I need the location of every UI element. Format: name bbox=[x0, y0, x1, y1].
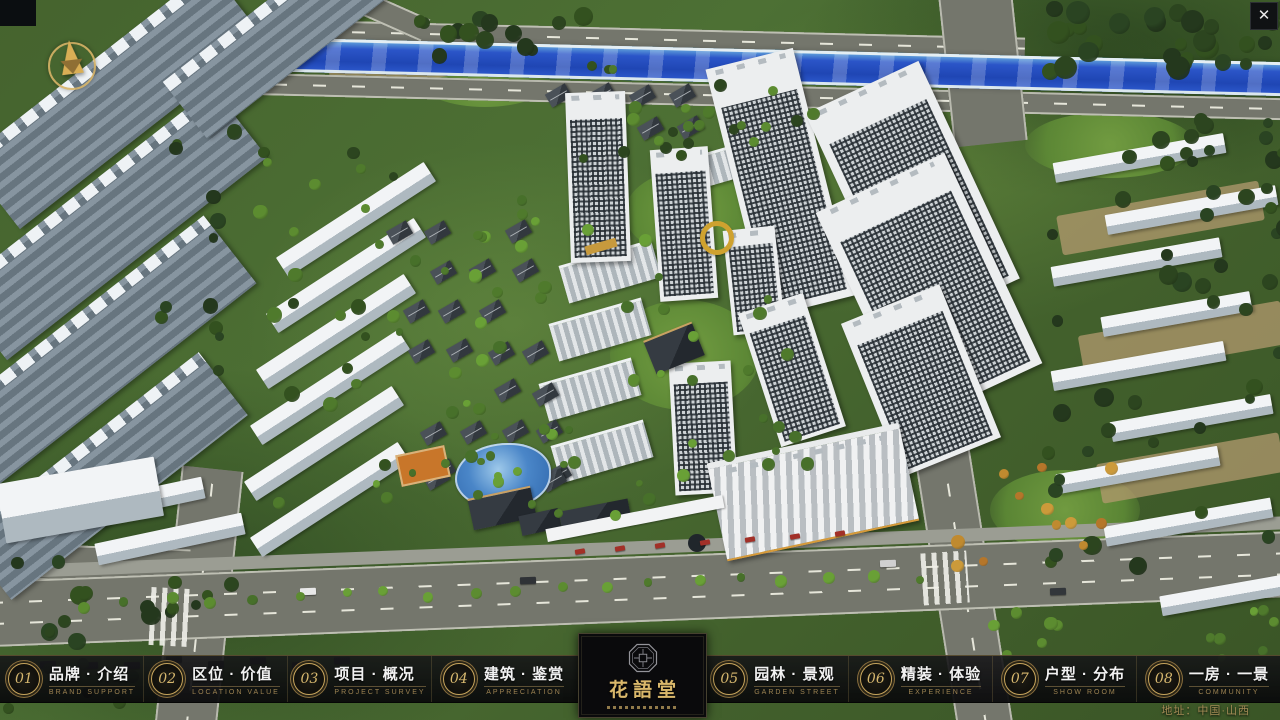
nav-subtitle: GARDEN STREET bbox=[754, 686, 840, 696]
tree bbox=[1094, 388, 1114, 408]
car bbox=[880, 560, 896, 568]
tree bbox=[351, 379, 362, 390]
tree bbox=[423, 592, 433, 602]
tree bbox=[764, 295, 772, 303]
nav-title: 一房 · 一景 bbox=[1189, 663, 1269, 684]
tree bbox=[1187, 156, 1198, 167]
tree bbox=[1263, 118, 1273, 128]
tree bbox=[677, 469, 690, 482]
tree bbox=[1109, 13, 1130, 34]
tree bbox=[1240, 58, 1252, 70]
tree bbox=[473, 231, 482, 240]
abs bbox=[0, 0, 36, 26]
tree bbox=[761, 122, 771, 132]
tree bbox=[288, 268, 303, 283]
tree bbox=[789, 431, 802, 444]
tree bbox=[723, 450, 735, 462]
tree bbox=[773, 421, 785, 433]
seal-emblem-icon bbox=[628, 643, 658, 673]
project-logo[interactable]: 花語堂 bbox=[578, 633, 707, 718]
tree bbox=[628, 374, 640, 386]
tree bbox=[1054, 56, 1077, 79]
nav-badge: 04 bbox=[443, 663, 475, 695]
car bbox=[520, 577, 536, 585]
tree bbox=[1052, 315, 1063, 326]
car bbox=[1050, 588, 1066, 596]
tree bbox=[688, 331, 699, 342]
tree bbox=[1122, 150, 1137, 165]
tree bbox=[410, 255, 421, 266]
tree bbox=[491, 433, 498, 440]
tree bbox=[1214, 259, 1228, 273]
villa bbox=[424, 220, 451, 244]
tree bbox=[473, 403, 485, 415]
tree bbox=[1078, 42, 1098, 62]
tree bbox=[119, 597, 129, 607]
tree bbox=[688, 439, 697, 448]
tree bbox=[554, 509, 563, 518]
tree bbox=[582, 224, 594, 236]
tree bbox=[1207, 295, 1221, 309]
tree bbox=[440, 25, 457, 42]
tree bbox=[657, 370, 665, 378]
villa bbox=[511, 258, 538, 282]
tree bbox=[381, 492, 392, 503]
walk bbox=[920, 550, 970, 605]
tree bbox=[753, 307, 767, 321]
tree bbox=[1066, 1, 1090, 25]
tree bbox=[565, 426, 573, 434]
tree bbox=[486, 451, 496, 461]
tree bbox=[676, 150, 687, 161]
tree bbox=[658, 304, 669, 315]
tree bbox=[1079, 541, 1088, 550]
tree bbox=[296, 592, 305, 601]
villa bbox=[408, 340, 435, 364]
tree bbox=[493, 476, 505, 488]
nav-subtitle: PROJECT SURVEY bbox=[334, 686, 425, 696]
tree bbox=[655, 273, 663, 281]
tree bbox=[258, 147, 269, 158]
nav-badge: 01 bbox=[8, 663, 40, 695]
tree bbox=[210, 213, 226, 229]
villa bbox=[493, 378, 520, 402]
nav-subtitle: BRAND SUPPORT bbox=[49, 686, 135, 696]
tree bbox=[1160, 156, 1175, 171]
tree bbox=[215, 332, 224, 341]
tree bbox=[481, 14, 498, 31]
tree bbox=[1200, 208, 1214, 222]
tree bbox=[1129, 557, 1147, 575]
tree bbox=[253, 205, 268, 220]
tree bbox=[999, 469, 1009, 479]
nav-subtitle: EXPERIENCE bbox=[901, 686, 981, 696]
tree bbox=[476, 354, 490, 368]
tree bbox=[267, 307, 283, 323]
tree bbox=[515, 240, 528, 253]
tree bbox=[694, 120, 705, 131]
tree bbox=[775, 575, 788, 588]
tree bbox=[528, 500, 536, 508]
tree bbox=[1015, 492, 1024, 501]
tree bbox=[168, 576, 182, 590]
tree bbox=[1181, 10, 1204, 33]
tree bbox=[1273, 347, 1280, 359]
tree bbox=[610, 510, 621, 521]
tree bbox=[1238, 189, 1254, 205]
tree bbox=[737, 573, 746, 582]
tree bbox=[1250, 607, 1258, 615]
nav-badge: 06 bbox=[860, 663, 892, 695]
tree bbox=[1042, 446, 1056, 460]
tree bbox=[1161, 249, 1173, 261]
nav-item-project-overview[interactable]: 03 项目 · 概况 PROJECT SURVEY bbox=[287, 656, 431, 702]
logo-tagline bbox=[607, 706, 679, 709]
tree bbox=[743, 365, 754, 376]
tree bbox=[1096, 518, 1107, 529]
tree bbox=[1082, 446, 1093, 457]
tree bbox=[636, 480, 643, 487]
tree bbox=[52, 555, 66, 569]
nav-item-one-room-one-view[interactable]: 08 一房 · 一景 COMMUNITY bbox=[1136, 656, 1280, 702]
tree bbox=[1054, 474, 1065, 485]
tree bbox=[1265, 202, 1277, 214]
tree bbox=[510, 586, 521, 597]
villa bbox=[438, 299, 465, 323]
tree bbox=[475, 317, 487, 329]
presentation-window: ✕ 01 品牌 · 介绍 BRAND SUPPORT 02 区位 · 价值 LO… bbox=[0, 0, 1280, 720]
tree bbox=[1144, 7, 1165, 28]
tree bbox=[517, 38, 535, 56]
tree bbox=[441, 459, 450, 468]
tree bbox=[224, 577, 239, 592]
address-label: 地址：中国·山西 bbox=[1161, 702, 1250, 718]
tree bbox=[379, 459, 391, 471]
tree bbox=[289, 227, 299, 237]
tree bbox=[1037, 463, 1047, 473]
gold-ring-feature bbox=[700, 221, 734, 255]
nav-badge: 05 bbox=[713, 663, 745, 695]
tree bbox=[988, 620, 999, 631]
tree bbox=[169, 142, 182, 155]
nav-item-landscape[interactable]: 05 园林 · 景观 GARDEN STREET bbox=[705, 656, 848, 702]
tree bbox=[1065, 517, 1077, 529]
tree bbox=[1258, 605, 1269, 616]
tree bbox=[668, 127, 678, 137]
tree bbox=[517, 195, 527, 205]
tree bbox=[477, 458, 484, 465]
villa bbox=[420, 421, 447, 445]
tree bbox=[1115, 191, 1131, 207]
nav-badge: 03 bbox=[293, 663, 325, 695]
tree bbox=[3, 703, 14, 714]
tree bbox=[737, 121, 746, 130]
tree bbox=[1128, 395, 1143, 410]
tree bbox=[409, 469, 416, 476]
tower bbox=[565, 91, 631, 263]
tree bbox=[1239, 303, 1252, 316]
tree bbox=[1195, 278, 1212, 295]
tree bbox=[323, 397, 338, 412]
tree bbox=[361, 204, 370, 213]
villa bbox=[446, 338, 473, 362]
tree bbox=[579, 154, 588, 163]
tree bbox=[1194, 422, 1206, 434]
nav-subtitle: LOCATION VALUE bbox=[192, 686, 280, 696]
tree bbox=[335, 310, 346, 321]
tree bbox=[916, 576, 924, 584]
nav-subtitle: APPRECIATION bbox=[484, 686, 564, 696]
tree bbox=[539, 424, 550, 435]
nav-subtitle: SHOW ROOM bbox=[1045, 686, 1125, 696]
tree bbox=[951, 560, 963, 572]
tree bbox=[1259, 131, 1273, 145]
tree bbox=[1262, 274, 1278, 290]
masterplan-render bbox=[0, 0, 1280, 720]
tree bbox=[683, 121, 694, 132]
close-icon[interactable]: ✕ bbox=[1250, 2, 1278, 30]
tree bbox=[979, 557, 988, 566]
tree bbox=[465, 450, 478, 463]
tree bbox=[1167, 56, 1191, 80]
tree bbox=[1195, 506, 1208, 519]
tree bbox=[1037, 638, 1047, 648]
tree bbox=[681, 104, 690, 113]
tree bbox=[68, 633, 85, 650]
tree bbox=[643, 493, 656, 506]
nav-title: 精装 · 体验 bbox=[901, 663, 981, 684]
tree bbox=[342, 363, 353, 374]
tree bbox=[247, 595, 258, 606]
tree bbox=[155, 311, 168, 324]
tree bbox=[1246, 379, 1263, 396]
tree bbox=[389, 172, 398, 181]
tree bbox=[469, 269, 482, 282]
villa bbox=[460, 420, 487, 444]
tree bbox=[1041, 503, 1053, 515]
tree bbox=[1196, 117, 1214, 135]
tree bbox=[1204, 19, 1219, 34]
nav-item-brand-intro[interactable]: 01 品牌 · 介绍 BRAND SUPPORT bbox=[0, 656, 143, 702]
tree bbox=[473, 490, 483, 500]
tree bbox=[347, 147, 360, 160]
nav-title: 区位 · 价值 bbox=[192, 663, 272, 684]
villa bbox=[402, 299, 429, 323]
tree bbox=[78, 602, 90, 614]
tree bbox=[351, 299, 366, 314]
tree bbox=[203, 298, 219, 314]
nav-item-interior-experience[interactable]: 06 精装 · 体验 EXPERIENCE bbox=[848, 656, 992, 702]
nav-item-floorplan-distribution[interactable]: 07 户型 · 分布 SHOW ROOM bbox=[992, 656, 1136, 702]
tree bbox=[801, 457, 814, 470]
tree bbox=[1049, 548, 1063, 562]
tree bbox=[1046, 1, 1062, 17]
nav-badge: 07 bbox=[1004, 663, 1036, 695]
nav-item-architecture[interactable]: 04 建筑 · 鉴赏 APPRECIATION bbox=[431, 656, 575, 702]
tree bbox=[204, 597, 216, 609]
tree bbox=[273, 497, 285, 509]
tree bbox=[627, 113, 640, 126]
tree bbox=[560, 461, 568, 469]
nav-group-right: 05 园林 · 景观 GARDEN STREET 06 精装 · 体验 EXPE… bbox=[705, 656, 1280, 702]
tree bbox=[45, 627, 55, 637]
tree bbox=[141, 606, 161, 626]
tree bbox=[1148, 437, 1159, 448]
tree bbox=[1044, 617, 1057, 630]
tree bbox=[206, 190, 220, 204]
tree bbox=[309, 179, 321, 191]
tree bbox=[687, 375, 698, 386]
tree bbox=[1101, 423, 1116, 438]
tree bbox=[609, 65, 618, 74]
tree bbox=[1206, 633, 1215, 642]
tree bbox=[361, 332, 371, 342]
tree bbox=[432, 48, 447, 63]
tree bbox=[703, 106, 715, 118]
nav-subtitle: COMMUNITY bbox=[1189, 686, 1269, 696]
tree bbox=[683, 138, 694, 149]
tree bbox=[160, 301, 172, 313]
villa bbox=[522, 340, 549, 364]
tree bbox=[868, 570, 880, 582]
tree bbox=[396, 328, 403, 335]
tree bbox=[476, 31, 494, 49]
tree bbox=[471, 588, 482, 599]
tree bbox=[1047, 21, 1070, 44]
nav-title: 户型 · 分布 bbox=[1045, 663, 1125, 684]
tree bbox=[531, 217, 540, 226]
nav-badge: 02 bbox=[151, 663, 183, 695]
nav-title: 品牌 · 介绍 bbox=[49, 663, 129, 684]
tree bbox=[1184, 129, 1199, 144]
villa bbox=[502, 419, 529, 443]
tree bbox=[209, 233, 218, 242]
tree bbox=[213, 365, 224, 376]
tree bbox=[284, 386, 300, 402]
tree bbox=[1053, 404, 1071, 422]
nav-title: 园林 · 景观 bbox=[754, 663, 834, 684]
tree bbox=[644, 578, 652, 586]
tree bbox=[373, 480, 380, 487]
tree bbox=[446, 406, 459, 419]
tree bbox=[823, 572, 835, 584]
nav-badge: 08 bbox=[1148, 663, 1180, 695]
tree bbox=[1258, 36, 1273, 51]
tree bbox=[375, 240, 384, 249]
tree bbox=[791, 115, 803, 127]
tree bbox=[1047, 229, 1058, 240]
tree bbox=[356, 164, 366, 174]
tree bbox=[568, 456, 581, 469]
tree bbox=[759, 414, 767, 422]
tree bbox=[493, 341, 507, 355]
compass-icon bbox=[42, 32, 100, 94]
project-name: 花語堂 bbox=[604, 675, 681, 702]
tree bbox=[1269, 617, 1279, 627]
tree bbox=[749, 137, 759, 147]
tree bbox=[574, 7, 593, 26]
tree bbox=[449, 367, 461, 379]
nav-group-left: 01 品牌 · 介绍 BRAND SUPPORT 02 区位 · 价值 LOCA… bbox=[0, 656, 575, 702]
tree bbox=[538, 281, 551, 294]
tree bbox=[1214, 633, 1226, 645]
tree bbox=[463, 400, 470, 407]
nav-title: 建筑 · 鉴赏 bbox=[484, 663, 564, 684]
tree bbox=[492, 287, 503, 298]
tree bbox=[1239, 36, 1255, 52]
tree bbox=[387, 310, 400, 323]
tree bbox=[654, 136, 664, 146]
nav-title: 项目 · 概况 bbox=[334, 663, 414, 684]
tree bbox=[618, 146, 630, 158]
tree bbox=[1011, 607, 1023, 619]
nav-item-location-value[interactable]: 02 区位 · 价值 LOCATION VALUE bbox=[143, 656, 287, 702]
tree bbox=[517, 209, 528, 220]
tree bbox=[263, 158, 272, 167]
